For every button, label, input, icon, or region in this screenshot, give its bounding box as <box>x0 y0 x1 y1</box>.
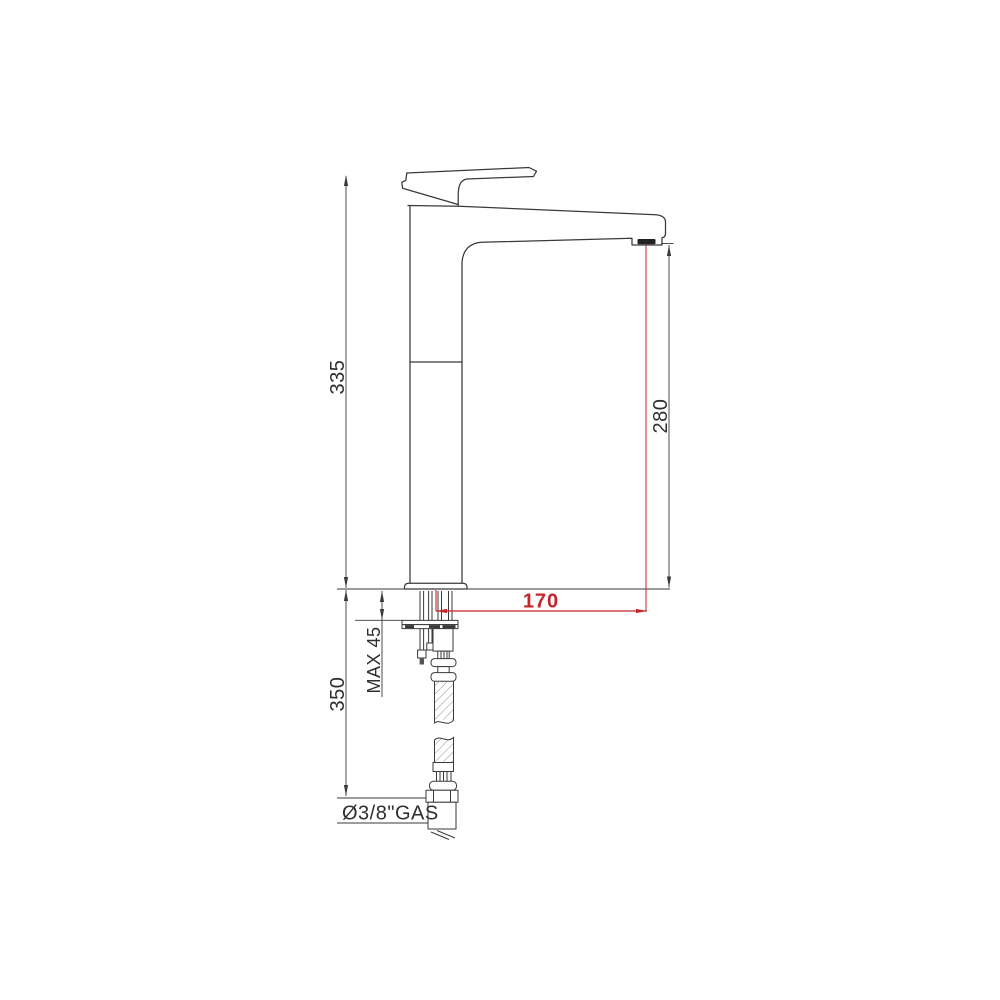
label-spout-reach: 170 <box>523 591 559 613</box>
dimension-lines-red <box>436 246 647 614</box>
label-overall-height: 335 <box>327 360 349 395</box>
dimension-labels: 335 350 MAX 45 280 170 Ø3/8"GAS <box>327 360 672 825</box>
aerator <box>638 239 656 244</box>
base-flange <box>405 583 468 589</box>
faucet-outline <box>402 168 666 590</box>
label-spout-height: 280 <box>650 399 672 434</box>
flexible-hose-lower <box>434 737 454 763</box>
tap-shank <box>438 591 452 620</box>
flexible-hose-upper <box>434 681 454 723</box>
lever-handle <box>407 168 537 206</box>
hose-break-symbol <box>434 720 454 724</box>
mounting-bracket <box>402 620 458 628</box>
label-max-thickness: MAX 45 <box>364 626 384 693</box>
technical-drawing-canvas: 335 350 MAX 45 280 170 Ø3/8"GAS <box>0 0 1000 1000</box>
handle-end-cap <box>402 173 458 205</box>
label-below-counter: 350 <box>327 677 349 712</box>
connection-fitting <box>426 763 458 840</box>
faucet-dimension-drawing: 335 350 MAX 45 280 170 Ø3/8"GAS <box>0 0 1000 1000</box>
hose-top-fitting <box>431 629 456 682</box>
dimension-lines-black <box>337 175 674 823</box>
label-connection-thread: Ø3/8"GAS <box>342 803 439 825</box>
spout-and-body-right <box>408 206 666 584</box>
